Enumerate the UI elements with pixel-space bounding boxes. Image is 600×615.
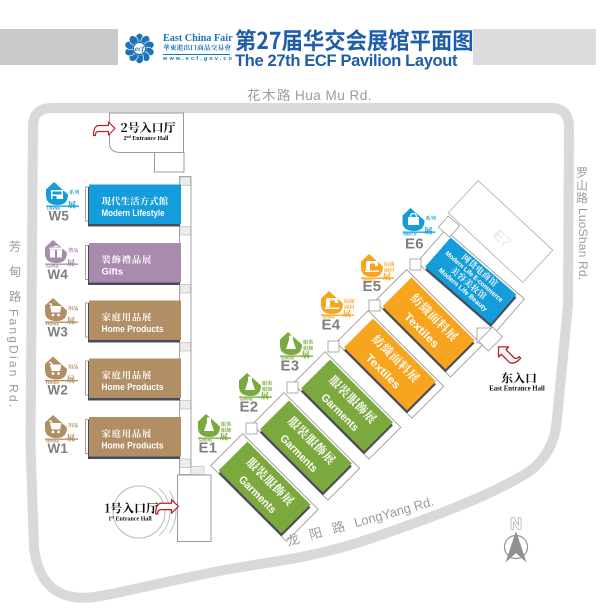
svg-text:W5: W5 <box>49 209 70 224</box>
svg-text:E3: E3 <box>281 358 300 375</box>
svg-text:E1: E1 <box>199 440 218 457</box>
svg-text:E6: E6 <box>405 236 424 253</box>
svg-text:FangDian Rd.: FangDian Rd. <box>7 309 21 409</box>
svg-text:Hua Mu Rd.: Hua Mu Rd. <box>295 88 372 103</box>
svg-text:E5: E5 <box>363 278 382 295</box>
svg-text:N: N <box>510 516 522 533</box>
svg-text:Modern Lifestyle: Modern Lifestyle <box>102 208 165 219</box>
svg-text:W3: W3 <box>48 325 69 340</box>
svg-text:W4: W4 <box>48 267 69 282</box>
svg-text:W1: W1 <box>48 441 69 456</box>
svg-text:W2: W2 <box>48 383 69 398</box>
svg-text:LuoShan Rd.: LuoShan Rd. <box>576 208 590 280</box>
svg-text:1st Entrance Hall: 1st Entrance Hall <box>108 516 152 523</box>
svg-text:2nd Entrance Hall: 2nd Entrance Hall <box>124 135 169 142</box>
svg-text:East Entrance Hall: East Entrance Hall <box>489 386 545 393</box>
svg-text:Home Products: Home Products <box>102 441 164 452</box>
svg-text:Home Products: Home Products <box>102 324 164 335</box>
svg-text:E4: E4 <box>322 317 341 334</box>
svg-text:E2: E2 <box>240 399 259 416</box>
svg-text:Gifts: Gifts <box>102 267 124 278</box>
svg-text:Home Products: Home Products <box>102 382 164 393</box>
